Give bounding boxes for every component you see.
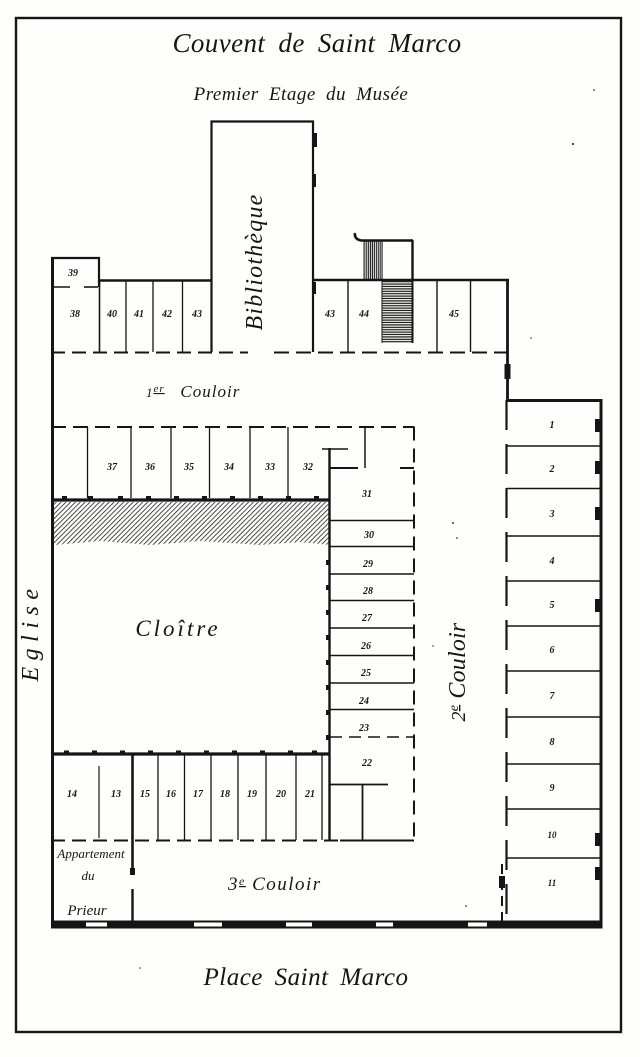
svg-text:22: 22 [361, 758, 372, 769]
svg-text:4: 4 [549, 556, 555, 567]
svg-text:20: 20 [275, 789, 286, 800]
svg-text:42: 42 [161, 309, 172, 320]
svg-text:38: 38 [69, 309, 80, 320]
svg-text:41: 41 [133, 309, 144, 320]
svg-text:32: 32 [302, 462, 313, 473]
svg-text:29: 29 [362, 559, 373, 570]
svg-text:44: 44 [358, 309, 369, 320]
svg-text:11: 11 [548, 878, 557, 888]
svg-text:3e Couloir: 3e Couloir [227, 874, 322, 895]
svg-text:5: 5 [550, 600, 555, 611]
svg-text:17: 17 [193, 789, 204, 800]
svg-text:25: 25 [360, 668, 371, 679]
svg-text:35: 35 [183, 462, 194, 473]
svg-text:1er Couloir: 1er Couloir [146, 382, 240, 401]
svg-text:24: 24 [358, 696, 369, 707]
svg-text:45: 45 [448, 309, 459, 320]
svg-text:8: 8 [550, 737, 555, 748]
svg-text:40: 40 [106, 309, 117, 320]
svg-text:Cloître: Cloître [135, 616, 220, 641]
svg-text:14: 14 [67, 789, 77, 800]
svg-text:7: 7 [550, 691, 556, 702]
svg-text:27: 27 [361, 613, 373, 624]
svg-text:6: 6 [550, 645, 555, 656]
svg-text:Place Saint Marco: Place Saint Marco [202, 964, 408, 991]
svg-text:33: 33 [264, 462, 275, 473]
svg-text:16: 16 [166, 789, 176, 800]
svg-text:43: 43 [191, 309, 202, 320]
svg-text:15: 15 [140, 789, 150, 800]
svg-text:21: 21 [304, 789, 315, 800]
svg-text:37: 37 [106, 462, 118, 473]
svg-text:3: 3 [549, 509, 555, 520]
svg-text:13: 13 [111, 789, 121, 800]
svg-text:30: 30 [363, 530, 374, 541]
svg-text:1: 1 [550, 420, 555, 431]
svg-text:28: 28 [362, 586, 373, 597]
svg-text:Eglise: Eglise [18, 583, 44, 683]
svg-text:2e Couloir: 2e Couloir [445, 622, 471, 721]
svg-text:43: 43 [324, 309, 335, 320]
svg-text:9: 9 [550, 783, 555, 794]
svg-text:18: 18 [220, 789, 230, 800]
svg-text:Premier Etage du Musée: Premier Etage du Musée [193, 84, 409, 105]
svg-text:Prieur: Prieur [66, 903, 106, 919]
svg-text:39: 39 [67, 268, 78, 279]
svg-text:Couvent de Saint Marco: Couvent de Saint Marco [173, 28, 462, 58]
svg-text:2: 2 [549, 464, 555, 475]
svg-text:du: du [82, 868, 96, 883]
svg-text:23: 23 [358, 723, 369, 734]
svg-text:10: 10 [548, 830, 558, 840]
svg-text:Bibliothèque: Bibliothèque [242, 193, 268, 330]
svg-text:36: 36 [144, 462, 155, 473]
svg-text:34: 34 [223, 462, 234, 473]
svg-text:31: 31 [361, 489, 372, 500]
svg-text:Appartement: Appartement [56, 846, 125, 861]
svg-text:19: 19 [247, 789, 257, 800]
svg-text:26: 26 [360, 641, 371, 652]
